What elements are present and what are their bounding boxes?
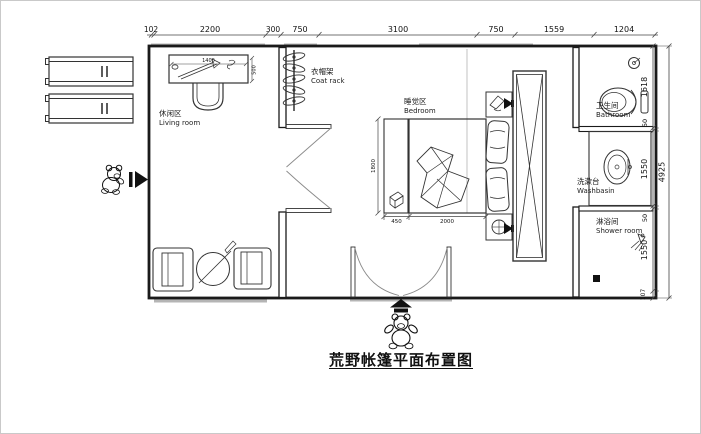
teddy-figure-icon [102, 165, 125, 194]
dim-label: 2000 [440, 219, 454, 225]
bathroom-label-zh: 卫生间 [596, 101, 630, 111]
dimension-top: 102 2200 300 750 3100 750 1559 1204 [144, 25, 658, 38]
dim-label: 1800 [371, 159, 377, 173]
dim-label: 3100 [388, 25, 408, 34]
bedroom-label-zh: 睡觉区 [404, 97, 436, 107]
bedroom-label: 睡觉区 Bedroom [404, 97, 436, 117]
dim-label: 1550 [640, 240, 649, 260]
armchair-icon [234, 248, 271, 289]
bathroom-wall [573, 48, 579, 128]
bedroom-label-en: Bedroom [404, 107, 436, 116]
lounger-icon [46, 94, 134, 123]
blanket-icon [417, 147, 469, 208]
nightstand-icon [384, 119, 408, 213]
coat-rack-label-en: Coat rack [311, 77, 345, 86]
lounger-icon [46, 57, 134, 86]
dimension-desk: 1400 500 [170, 56, 258, 83]
coat-rack-label-zh: 衣帽架 [311, 67, 345, 77]
armchair-icon [153, 248, 193, 291]
dim-label: 1550 [640, 159, 649, 179]
door-arc [355, 248, 399, 296]
bathroom-label-en: Bathroom [596, 111, 630, 120]
pillow-icon [486, 167, 510, 211]
living-room-furniture [153, 55, 271, 291]
dim-label: 4925 [658, 162, 667, 182]
door-leaf [286, 209, 331, 213]
dim-label: 1618 [640, 77, 649, 97]
door-arc [287, 128, 332, 167]
chair-icon [193, 83, 223, 110]
doors [286, 125, 451, 298]
door-leaf [286, 125, 331, 129]
door-arc [403, 248, 447, 296]
loungers [46, 57, 134, 123]
blanket-folds [421, 147, 461, 208]
toilet-paper-icon [629, 58, 641, 69]
dim-label: 2200 [200, 25, 220, 34]
dim-label: 450 [391, 219, 402, 225]
living-room-label-zh: 休闲区 [159, 109, 200, 119]
dim-label: 102 [144, 25, 159, 34]
shower-wall [573, 207, 579, 297]
shower-room-label: 淋浴间 Shower room [596, 217, 642, 237]
interior-wall [279, 212, 286, 298]
door-leaf [351, 247, 355, 297]
dim-label: 50 [641, 119, 649, 127]
floor-drain-icon [593, 275, 600, 282]
dim-label: 1400 [202, 58, 215, 64]
walls [149, 46, 656, 298]
interior-wall [279, 48, 286, 128]
outer-wall [149, 46, 656, 298]
pillow-icon [486, 120, 510, 163]
teddy-figure-icon [383, 314, 419, 349]
dim-label: 750 [292, 25, 307, 34]
washbasin-label: 洗漱台 Washbasin [577, 177, 615, 197]
dim-label: 750 [488, 25, 503, 34]
washbasin-label-en: Washbasin [577, 187, 615, 196]
divider-wall [579, 206, 653, 211]
bathroom-label: 卫生间 Bathroom [596, 101, 630, 121]
dim-label: 107 [640, 289, 647, 301]
door-arc [287, 171, 332, 209]
bed-icon [409, 119, 486, 213]
dim-label: 300 [266, 25, 281, 34]
coat-rack-label: 衣帽架 Coat rack [311, 67, 345, 87]
bedroom-furniture [384, 49, 546, 261]
entrance-arrow-icon [129, 171, 148, 188]
round-table-icon [197, 241, 237, 286]
living-room-label: 休闲区 Living room [159, 109, 200, 129]
door-leaf [447, 247, 451, 297]
living-room-label-en: Living room [159, 119, 200, 128]
washbasin-label-zh: 洗漱台 [577, 177, 615, 187]
plan-title: 荒野帐篷平面布置图 [286, 349, 516, 370]
dim-label: 1204 [614, 25, 634, 34]
floor-plan-canvas: 102 2200 300 750 3100 750 1559 1204 1618 [0, 0, 701, 434]
wardrobe-icon [513, 71, 546, 261]
shower-room-label-zh: 淋浴间 [596, 217, 642, 227]
shower-room-label-en: Shower room [596, 227, 642, 236]
dim-label: 1559 [544, 25, 564, 34]
dim-label: 500 [252, 65, 258, 75]
